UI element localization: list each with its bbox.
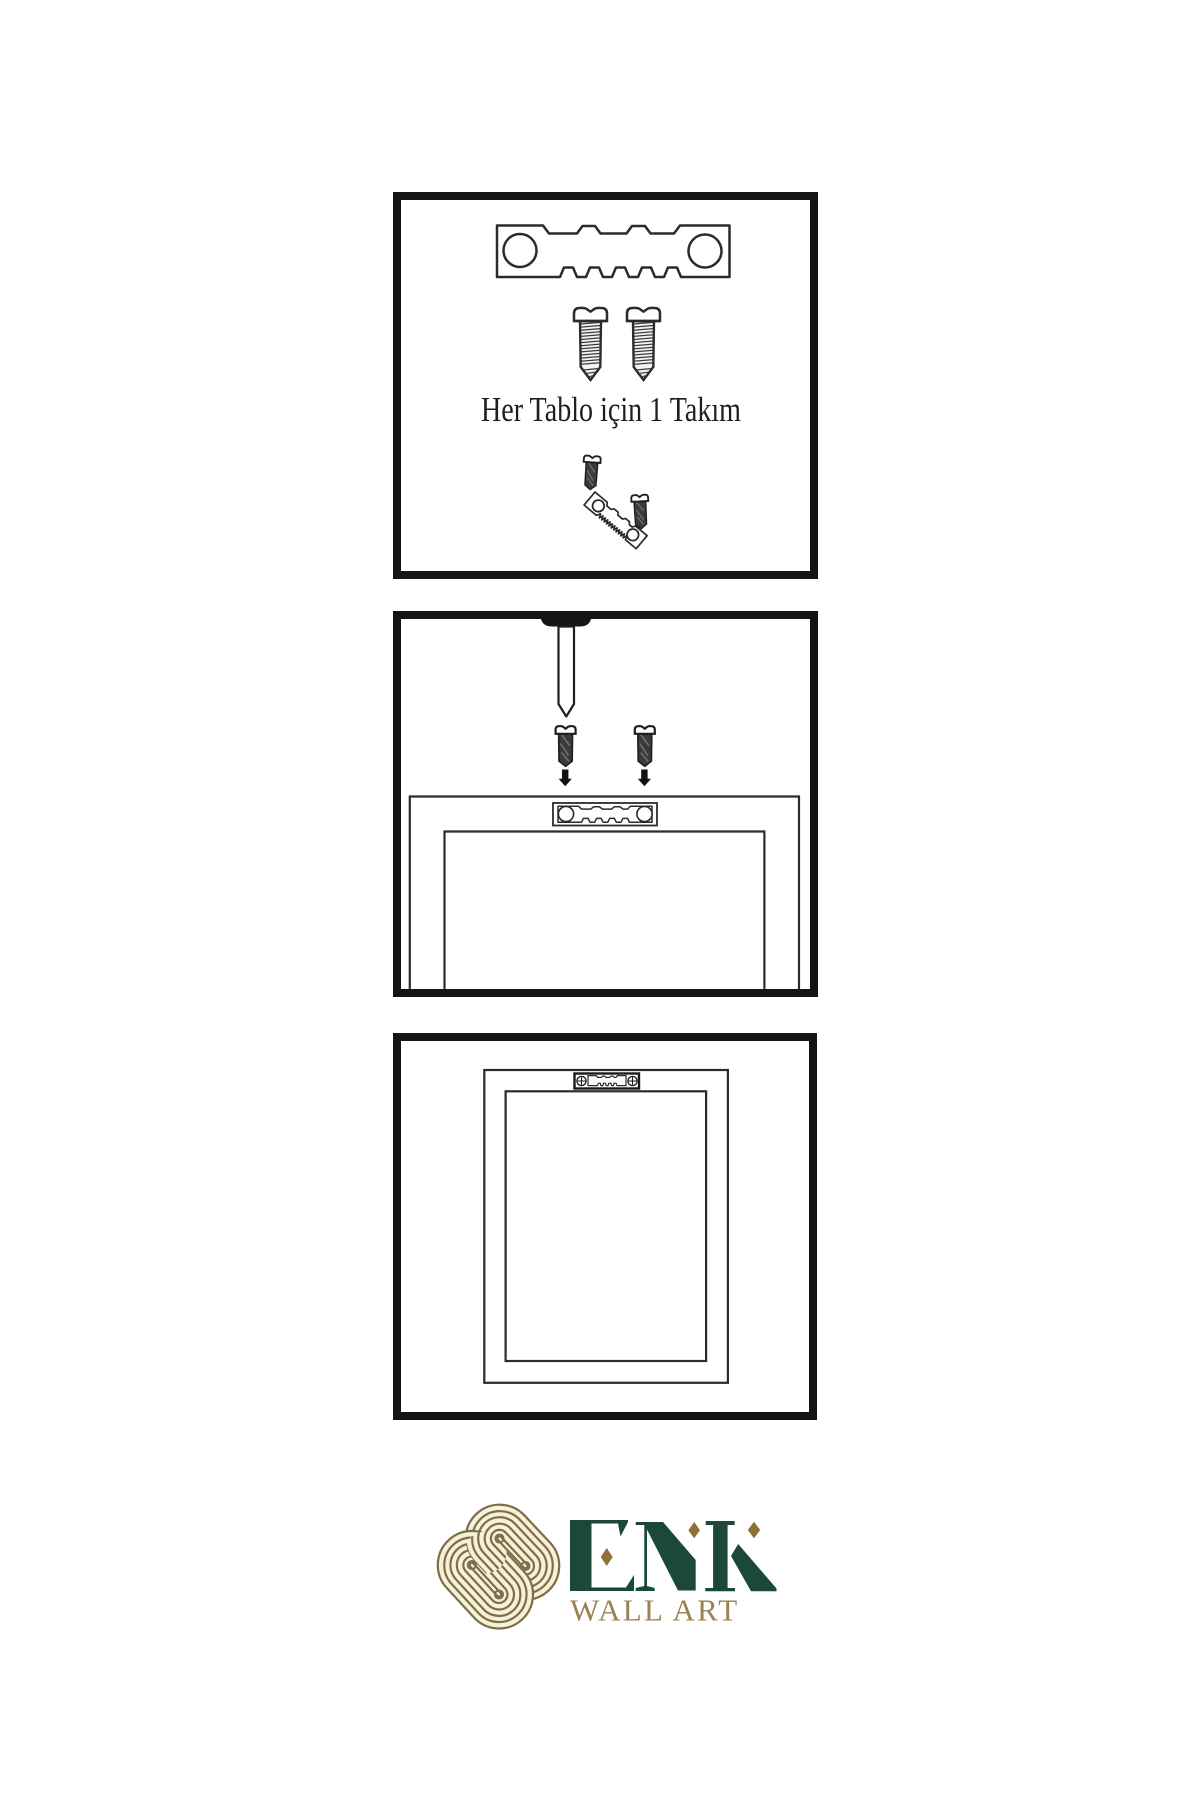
svg-text:Her Tablo için 1 Takım: Her Tablo için 1 Takım xyxy=(481,390,741,429)
svg-text:WALL ART: WALL ART xyxy=(570,1593,740,1628)
